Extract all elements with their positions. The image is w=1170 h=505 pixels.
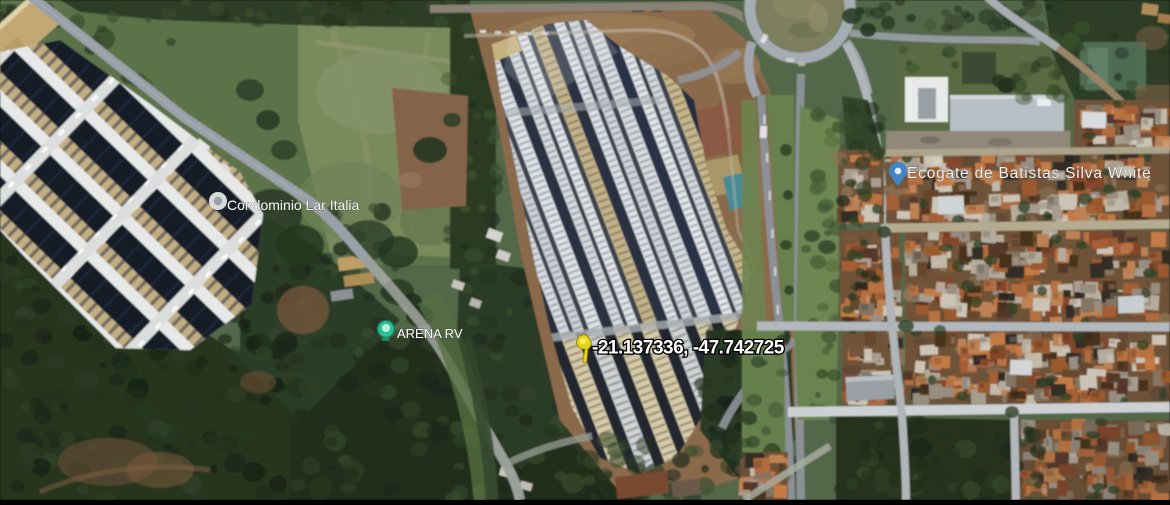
svg-text:Ecogate de Batistas Silva Whit: Ecogate de Batistas Silva White [907,165,1152,182]
svg-text:ARENA RV: ARENA RV [397,326,463,341]
svg-text:Condominio Lar Italia: Condominio Lar Italia [227,197,360,213]
svg-text:-21.137336, -47.742725: -21.137336, -47.742725 [592,338,785,359]
